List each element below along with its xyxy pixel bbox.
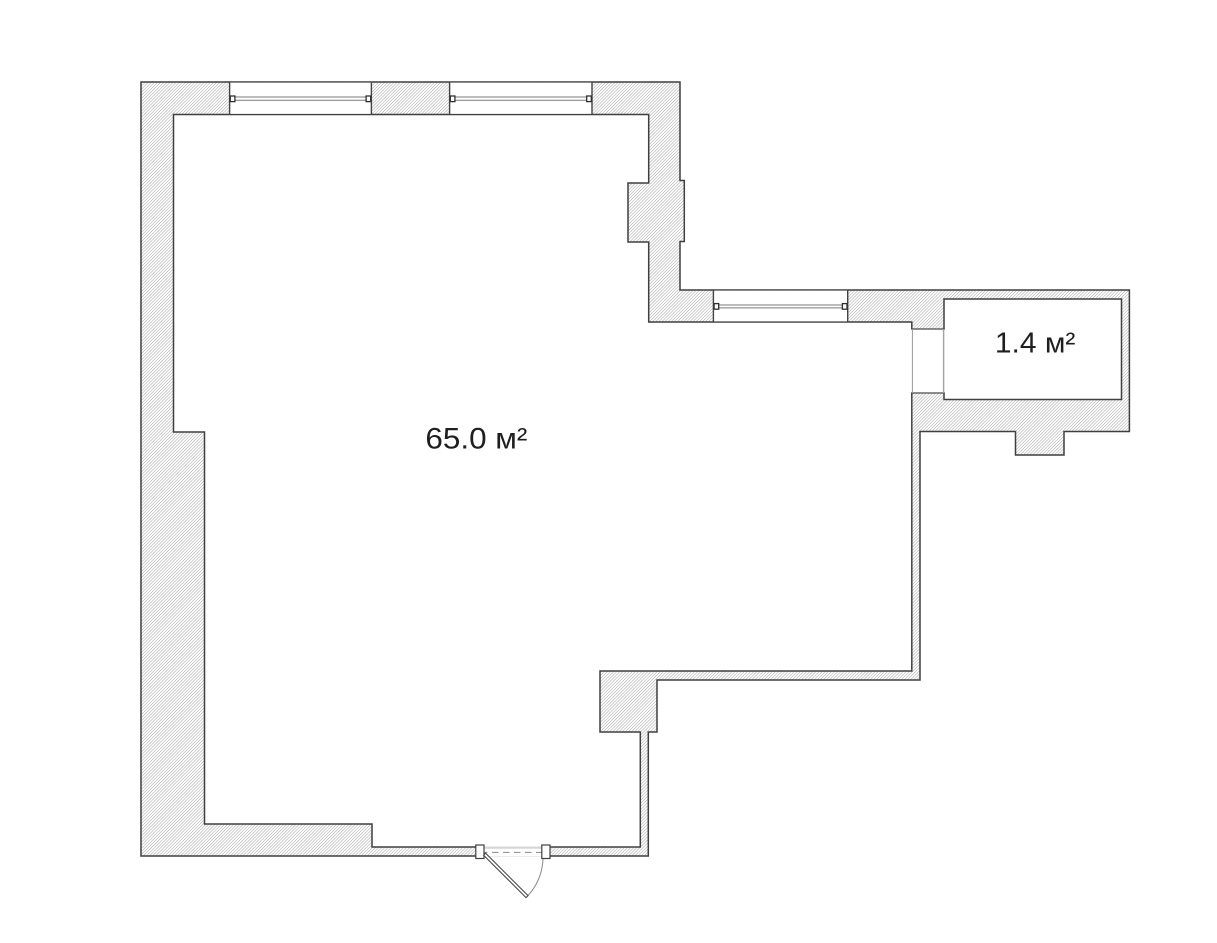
svg-text:65.0 м²: 65.0 м²: [425, 423, 527, 456]
svg-text:1.4 м²: 1.4 м²: [995, 328, 1076, 360]
